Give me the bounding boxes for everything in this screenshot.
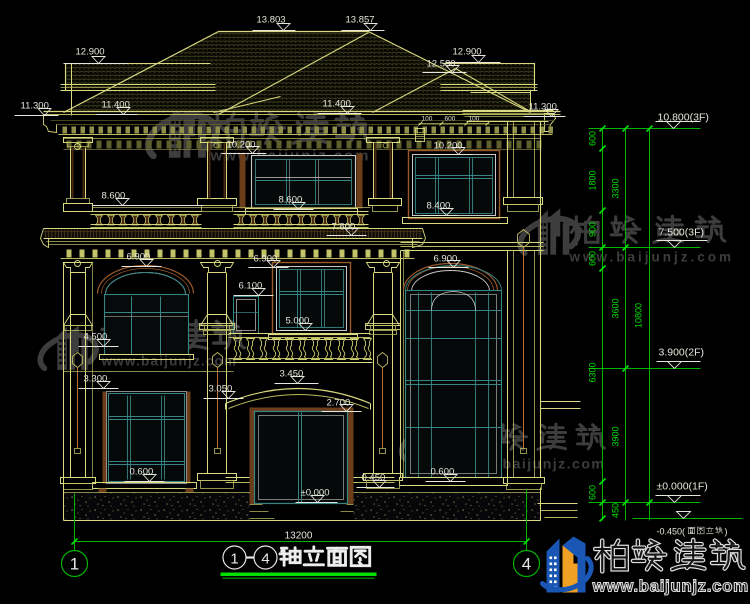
svg-text:6300: 6300 xyxy=(588,362,598,382)
svg-text:10.200: 10.200 xyxy=(227,140,256,151)
svg-text:8.600: 8.600 xyxy=(102,191,126,202)
svg-text:1: 1 xyxy=(70,555,79,574)
svg-text:3.300: 3.300 xyxy=(84,374,108,385)
svg-text:1: 1 xyxy=(230,551,238,568)
svg-text:): ) xyxy=(725,527,728,537)
svg-text:7.500(3F): 7.500(3F) xyxy=(659,227,705,239)
svg-text:1800: 1800 xyxy=(588,170,598,190)
svg-text:8.600: 8.600 xyxy=(279,195,303,206)
svg-text:6.900: 6.900 xyxy=(127,252,151,263)
svg-text:0.600: 0.600 xyxy=(431,467,455,478)
svg-text:600: 600 xyxy=(588,251,598,266)
svg-text:0.600: 0.600 xyxy=(130,467,154,478)
svg-text:0.450: 0.450 xyxy=(362,473,386,484)
svg-text:12.900: 12.900 xyxy=(76,47,105,58)
svg-text:3300: 3300 xyxy=(611,178,621,198)
svg-text:6.100: 6.100 xyxy=(239,281,263,292)
svg-text:3.450: 3.450 xyxy=(280,369,304,380)
svg-text:600: 600 xyxy=(588,131,598,146)
svg-text:±0.000: ±0.000 xyxy=(301,488,330,499)
svg-text:100: 100 xyxy=(422,116,433,123)
svg-text:10.200: 10.200 xyxy=(434,141,463,152)
svg-text:www.baijunjz.com: www.baijunjz.com xyxy=(101,354,238,369)
svg-text:6.900: 6.900 xyxy=(254,254,278,265)
svg-text:11.300: 11.300 xyxy=(529,102,557,113)
svg-text:4.500: 4.500 xyxy=(84,332,108,343)
svg-text:600: 600 xyxy=(445,116,456,123)
svg-text:3.900(2F): 3.900(2F) xyxy=(659,347,705,359)
svg-text:900: 900 xyxy=(588,222,598,237)
svg-text:8.400: 8.400 xyxy=(427,201,451,212)
svg-text:4: 4 xyxy=(261,551,269,568)
svg-text:11.400: 11.400 xyxy=(102,100,130,111)
svg-text:3.050: 3.050 xyxy=(209,384,233,395)
svg-text:www.baijunjz.com: www.baijunjz.com xyxy=(592,577,749,596)
svg-text:600: 600 xyxy=(588,485,598,500)
svg-text:11.400: 11.400 xyxy=(323,99,351,110)
svg-text:4: 4 xyxy=(522,555,531,574)
svg-text:7.800: 7.800 xyxy=(332,222,356,233)
svg-text:6.900: 6.900 xyxy=(434,254,458,265)
svg-text:3600: 3600 xyxy=(611,298,621,318)
svg-text:12.580: 12.580 xyxy=(427,59,456,70)
svg-text:5.000: 5.000 xyxy=(286,316,310,327)
svg-text:450: 450 xyxy=(611,503,621,518)
svg-text:±0.000(1F): ±0.000(1F) xyxy=(657,481,708,493)
svg-text:11.300: 11.300 xyxy=(21,101,49,112)
svg-text:3900: 3900 xyxy=(611,426,621,446)
svg-text:100: 100 xyxy=(469,116,480,123)
svg-text:-0.450(: -0.450( xyxy=(657,527,686,537)
svg-text:10800: 10800 xyxy=(634,303,644,328)
svg-text:13200: 13200 xyxy=(285,531,313,542)
svg-text:2.700: 2.700 xyxy=(327,398,351,409)
